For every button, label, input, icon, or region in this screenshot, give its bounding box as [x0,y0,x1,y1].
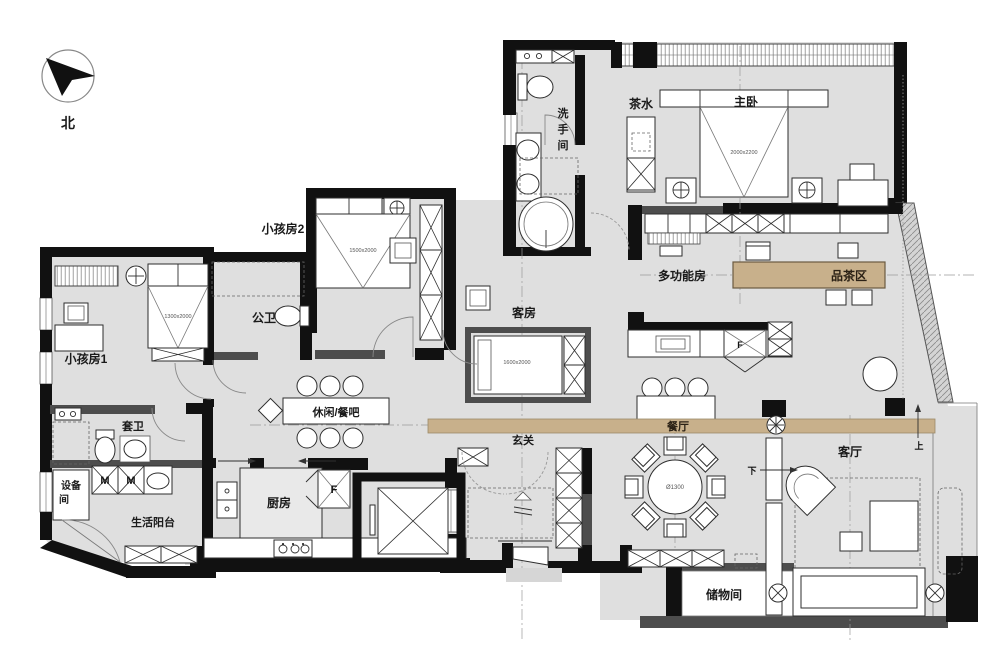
floor-plan-drawing: 北 小孩房2 洗 手 间 茶水 主卧 多功能房 品茶区 客房 小孩房1 公卫 套… [0,0,1000,652]
washer2-label: M [126,475,135,487]
room-label-washroom-3: 间 [558,139,569,152]
room-label-tea-pantry: 茶水 [628,96,654,111]
round-bathtub [519,197,573,251]
room-label-foyer: 玄关 [512,433,534,447]
stairs-down-label: 下 [747,466,756,476]
room-label-ensuite: 套卫 [122,419,144,433]
round-side-table [863,357,897,391]
room-label-equipment-2: 间 [59,493,69,506]
gas-stove [274,540,312,557]
bar-island [637,396,715,420]
sink-1 [517,140,539,160]
fridge2-label: F [737,340,743,350]
coffee-table [870,501,918,551]
fridge-label: F [331,484,338,496]
room-label-storage: 储物间 [706,587,742,602]
side-table [840,532,862,551]
ceiling-fan [767,416,785,434]
room-label-leisure-bar: 休闲/餐吧 [311,405,359,419]
nightstand-right [792,178,822,203]
room-label-master: 主卧 [734,94,758,109]
room-label-dining: 餐厅 [666,419,689,433]
nightstand-left [666,178,696,203]
dim-kids2-bed: 1500x2000 [349,248,376,254]
room-label-washroom-2: 手 [558,122,569,136]
dim-master-bed: 2000x2200 [730,150,757,156]
room-label-public-bath: 公卫 [252,311,276,325]
room-label-guest: 客房 [511,305,536,320]
room-label-washroom-1: 洗 [558,106,569,120]
dim-guest-bed: 1600x2000 [503,360,530,366]
room-label-balcony: 生活阳台 [131,515,175,529]
room-label-kids1: 小孩房1 [65,351,108,366]
room-label-equipment-1: 设备 [61,479,82,492]
room-label-kitchen: 厨房 [267,495,291,510]
sofa [793,568,925,616]
toilet [518,74,553,100]
washer1-label: M [100,475,109,487]
floor-plan-page: 北 小孩房2 洗 手 间 茶水 主卧 多功能房 品茶区 客房 小孩房1 公卫 套… [0,0,1000,652]
room-label-multifunction: 多功能房 [658,268,706,283]
kids1-desk [55,325,103,351]
room-label-kids2: 小孩房2 [262,221,305,236]
room-label-tea-area: 品茶区 [831,268,867,283]
compass [42,50,95,102]
dim-dining-table: Ø1300 [666,485,685,491]
room-label-living: 客厅 [837,444,862,459]
north-label: 北 [61,115,75,131]
tea-pantry-cabinet [627,117,655,192]
master-chair [850,164,874,180]
stairs-up-label: 上 [914,440,923,451]
master-desk [838,180,888,206]
dim-kids1-bed: 1300x2000 [164,314,191,320]
